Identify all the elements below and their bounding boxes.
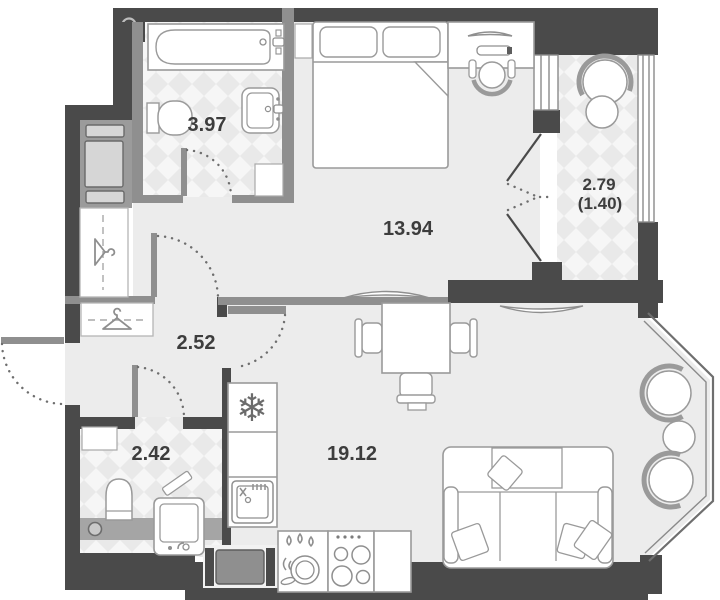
- entrance-door: [1, 337, 64, 404]
- balcony-right-window: [638, 55, 654, 222]
- wall-french-door-stub-top: [533, 110, 560, 133]
- wall-bathroom-bottom-left: [132, 195, 183, 203]
- bathroom-cabinet: [255, 164, 283, 196]
- pillow: [320, 27, 377, 57]
- balcony-table: [586, 96, 618, 128]
- bay-table: [663, 421, 695, 453]
- shaft-box-large: [85, 141, 123, 187]
- pillow: [383, 27, 440, 57]
- wall-french-door-stub-bottom: [532, 262, 562, 283]
- wc-toilet: [106, 479, 132, 520]
- desk: [448, 22, 534, 68]
- floor-plan-canvas: ❄: [0, 0, 720, 600]
- wc-shelf: [82, 427, 117, 450]
- floor-plan: ❄: [0, 0, 720, 600]
- niche-pier-left: [205, 548, 214, 586]
- wall-left-upper: [113, 22, 133, 120]
- wall-balcony-top: [533, 8, 658, 55]
- niche-pier-right: [266, 548, 275, 586]
- bedroom-balcony-window: [534, 55, 558, 110]
- bed: [313, 22, 448, 168]
- sofa: [443, 447, 613, 568]
- balcony-reduced-area-label: (1.40): [578, 194, 622, 213]
- bathroom-area-label: 3.97: [188, 114, 227, 136]
- bathroom-sink: [242, 88, 283, 133]
- shaft-box-small-top: [86, 125, 124, 137]
- bathtub: [148, 24, 284, 70]
- floor-drain-icon: [89, 523, 102, 536]
- closet-horizontal: [81, 303, 153, 336]
- closet-vertical: [80, 208, 128, 297]
- kitchen-counter-segment: [374, 531, 411, 592]
- wall-right-mid: [638, 222, 658, 318]
- dining-table: [382, 303, 450, 373]
- washing-machine: [216, 550, 264, 584]
- living-kitchen-area-label: 19.12: [327, 443, 377, 465]
- hallway-area-label: 2.52: [177, 332, 216, 354]
- shaft-box-small-bottom: [86, 191, 124, 203]
- kitchen-column: ❄: [228, 383, 277, 527]
- wall-bedroom-living: [448, 280, 663, 303]
- nightstand: [295, 24, 312, 58]
- balcony-area-label: 2.79: [582, 175, 615, 194]
- kitchen-sink: [232, 481, 273, 523]
- wall-left: [65, 120, 80, 343]
- bedroom-area-label: 13.94: [383, 218, 434, 240]
- freezer-icon: ❄: [236, 386, 268, 430]
- wall-left-lower: [65, 405, 80, 557]
- wall-bathroom-left: [132, 22, 143, 203]
- wc-basin: [154, 498, 204, 555]
- stove-unit: [328, 531, 374, 592]
- sofa-armrest-left: [444, 487, 458, 563]
- wall-left-jog: [65, 105, 113, 120]
- dishwasher-unit: [278, 531, 328, 592]
- wc-area-label: 2.42: [132, 443, 171, 465]
- dining-chair-right: [450, 319, 477, 357]
- bathroom-toilet: [147, 101, 192, 135]
- dining-chair-left: [355, 319, 382, 357]
- wall-bottom-wc: [65, 553, 195, 590]
